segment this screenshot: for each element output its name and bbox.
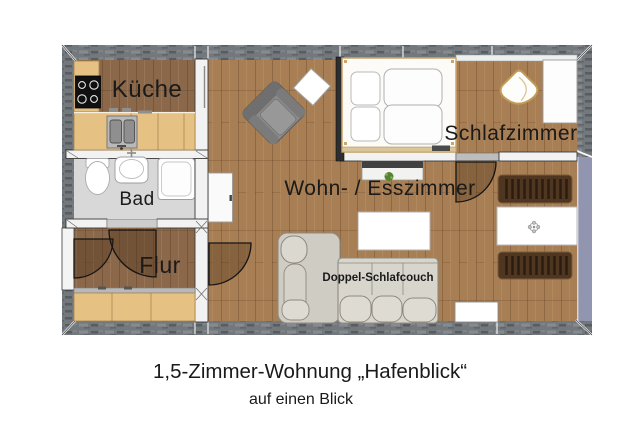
cooktop xyxy=(76,76,101,108)
heater xyxy=(455,302,498,322)
double-bed xyxy=(342,58,456,152)
partition-bedroom-south-left xyxy=(340,152,456,161)
bath-door-threshold xyxy=(107,220,157,228)
plan-title: 1,5-Zimmer-Wohnung „Hafenblick“ xyxy=(153,360,467,383)
coffee-table xyxy=(358,212,430,250)
dining-bench-top xyxy=(498,175,572,203)
floor-plan: Küche Bad Flur Wohn- / Esszimmer Schlafz… xyxy=(0,0,640,427)
bath-label: Bad xyxy=(119,189,154,210)
sofa-label: Doppel-Schlafcouch xyxy=(322,272,433,284)
shower xyxy=(158,159,195,200)
dining-set xyxy=(497,175,577,279)
caption: 1,5-Zimmer-Wohnung „Hafenblick“ auf eine… xyxy=(153,360,467,408)
counter-handle xyxy=(109,108,118,112)
pillow xyxy=(351,107,380,141)
plan-subtitle: auf einen Blick xyxy=(249,391,354,408)
kitchen-label: Küche xyxy=(112,76,183,103)
hall xyxy=(74,287,195,322)
bedroom-wardrobe xyxy=(543,60,577,123)
wall-shelf xyxy=(209,173,233,222)
hall-label: Flur xyxy=(139,252,181,278)
bedroom-door-leaf-bar xyxy=(456,153,499,161)
partition-vertical-left-column xyxy=(195,59,208,322)
kitchen-sink xyxy=(107,116,137,150)
duvet xyxy=(384,105,442,144)
counter-handle xyxy=(122,108,131,112)
living-label: Wohn- / Esszimmer xyxy=(284,177,475,200)
wall-left-texture xyxy=(62,45,74,335)
counter-handle xyxy=(138,111,152,114)
window-front-wall xyxy=(577,157,592,321)
duvet xyxy=(384,69,442,107)
toilet xyxy=(86,159,110,195)
pillow xyxy=(351,72,380,105)
floor-plan-page: Küche Bad Flur Wohn- / Esszimmer Schlafz… xyxy=(0,0,640,427)
dining-bench-bottom xyxy=(498,252,572,279)
wall-right-upper-texture xyxy=(577,45,592,157)
partition-bath-hall-right xyxy=(157,219,208,228)
partition-bedroom-south-right xyxy=(499,152,577,161)
hall-wardrobe xyxy=(74,287,195,322)
bedroom-label: Schlafzimmer xyxy=(444,122,577,145)
entrance-opening xyxy=(62,228,74,290)
